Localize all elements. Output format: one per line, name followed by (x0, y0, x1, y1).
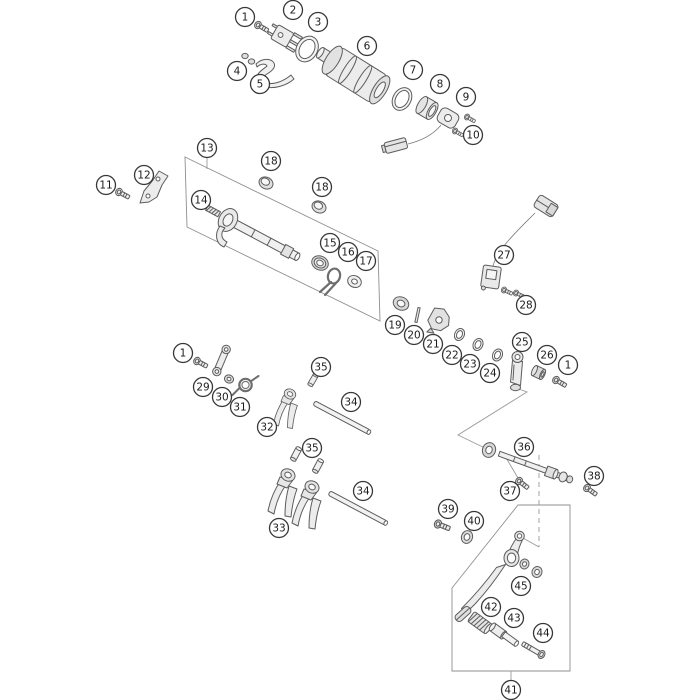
callout-14[interactable]: 14 (192, 191, 211, 210)
callout-36-label: 36 (517, 442, 531, 454)
callout-37-label: 37 (503, 486, 516, 498)
callout-24-label: 24 (483, 368, 497, 380)
callout-40-label: 40 (467, 516, 480, 528)
callout-29-label: 29 (196, 382, 209, 394)
part-bearing-36-end (480, 441, 497, 460)
callout-25-label: 25 (515, 337, 528, 349)
callout-38[interactable]: 38 (585, 467, 604, 486)
callout-14-label: 14 (194, 195, 208, 207)
callout-16-label: 16 (341, 247, 355, 259)
callout-39[interactable]: 39 (439, 500, 458, 519)
callout-27-label: 27 (497, 250, 510, 262)
callout-45-label: 45 (514, 581, 527, 593)
part-washer-45a (519, 558, 531, 570)
callout-27[interactable]: 27 (495, 246, 514, 265)
callout-26-label: 26 (540, 350, 554, 362)
callout-10[interactable]: 10 (464, 126, 483, 145)
callout-30-label: 30 (215, 392, 228, 404)
callout-39-label: 39 (441, 504, 454, 516)
part-screw-10a (463, 113, 476, 124)
callout-43-label: 43 (507, 613, 520, 625)
box-shift-shaft-assembly (185, 157, 380, 321)
callout-30[interactable]: 30 (213, 388, 232, 407)
part-oring-3 (291, 32, 323, 66)
callout-5-label: 5 (257, 79, 264, 91)
part-bearing-19 (391, 294, 411, 313)
diagram-canvas: 1234567891011121314181815161719202122232… (0, 0, 700, 700)
part-screw-28a (500, 286, 513, 296)
part-shift-fork-32 (274, 387, 298, 428)
callout-38-label: 38 (587, 471, 600, 483)
callout-1-top-label: 1 (242, 12, 249, 24)
callout-6-label: 6 (364, 41, 371, 53)
part-shift-fork-33a (268, 467, 297, 517)
callout-4[interactable]: 4 (228, 62, 247, 81)
part-bearing-15 (309, 253, 330, 273)
callout-22-label: 22 (445, 350, 458, 362)
callout-12-label: 12 (137, 170, 150, 182)
part-bushing-8 (414, 95, 441, 121)
callout-31-label: 31 (233, 402, 246, 414)
callout-8-label: 8 (437, 79, 444, 91)
callout-11[interactable]: 11 (97, 176, 116, 195)
callout-1-lower[interactable]: 1 (174, 344, 193, 363)
callout-20[interactable]: 20 (405, 326, 424, 345)
callout-35-lower[interactable]: 35 (303, 439, 322, 458)
part-bushing-18-right (310, 199, 328, 216)
part-shift-shaft-13 (214, 205, 301, 262)
callout-13-label: 13 (200, 143, 213, 155)
part-roller-35-lower-b (312, 458, 324, 474)
part-link-29 (211, 344, 231, 377)
callout-3-label: 3 (315, 17, 322, 29)
callout-45[interactable]: 45 (512, 577, 531, 596)
leader-shaft-to-pedal-tail (523, 538, 539, 547)
callout-23[interactable]: 23 (461, 355, 480, 374)
part-index-segment-21 (423, 305, 454, 339)
callout-37[interactable]: 37 (501, 482, 520, 501)
callout-10-label: 10 (466, 130, 479, 142)
part-washer-24 (491, 347, 505, 362)
callout-16[interactable]: 16 (339, 243, 358, 262)
callout-40[interactable]: 40 (465, 512, 484, 531)
callout-35-lower-label: 35 (305, 443, 318, 455)
callout-34-upper[interactable]: 34 (342, 393, 361, 412)
callout-12[interactable]: 12 (135, 166, 154, 185)
part-bolt-1-top (253, 20, 270, 34)
callout-13[interactable]: 13 (198, 139, 217, 158)
callout-24[interactable]: 24 (481, 364, 500, 383)
callout-9-label: 9 (463, 92, 470, 104)
callout-33-label: 33 (272, 523, 285, 535)
part-washer-22 (453, 327, 467, 342)
callouts-layer: 1234567891011121314181815161719202122232… (97, 1, 604, 700)
part-pin-20 (415, 307, 420, 322)
part-connector-top (381, 137, 408, 154)
callout-28[interactable]: 28 (517, 296, 536, 315)
callout-1-mid-label: 1 (565, 360, 572, 372)
part-bushing-18-left (257, 175, 275, 192)
callout-18-left-label: 18 (264, 156, 277, 168)
callout-15[interactable]: 15 (321, 234, 340, 253)
callout-20-label: 20 (407, 330, 420, 342)
callout-41-label: 41 (504, 685, 517, 697)
callout-29[interactable]: 29 (194, 378, 213, 397)
callout-6[interactable]: 6 (358, 37, 377, 56)
callout-21[interactable]: 21 (424, 335, 443, 354)
part-shift-lever-25 (511, 352, 524, 391)
callout-34-lower-label: 34 (356, 486, 370, 498)
callout-32[interactable]: 32 (258, 418, 277, 437)
callout-18-right[interactable]: 18 (313, 178, 332, 197)
callout-17[interactable]: 17 (357, 252, 376, 271)
callout-34-upper-label: 34 (344, 397, 358, 409)
callout-5[interactable]: 5 (251, 75, 270, 94)
part-spring-31 (233, 376, 259, 395)
callout-9[interactable]: 9 (457, 88, 476, 107)
callout-8[interactable]: 8 (431, 75, 450, 94)
part-washer-40 (460, 529, 475, 545)
part-connector-27 (533, 194, 559, 218)
callout-1-mid[interactable]: 1 (559, 356, 578, 375)
callout-33[interactable]: 33 (270, 519, 289, 538)
part-washer-45b (530, 565, 543, 579)
callout-18-right-label: 18 (315, 182, 328, 194)
part-screw-10b (451, 127, 464, 138)
callout-35-upper[interactable]: 35 (312, 358, 331, 377)
callout-32-label: 32 (260, 422, 273, 434)
parts-diagram: 1234567891011121314181815161719202122232… (0, 0, 700, 700)
callout-22[interactable]: 22 (443, 346, 462, 365)
callout-11-label: 11 (99, 180, 112, 192)
part-nut-26 (530, 365, 547, 381)
callout-19-label: 19 (388, 320, 401, 332)
part-shift-fork-33b (292, 479, 321, 529)
part-sensor-cable-top (408, 125, 441, 144)
part-gear-position-sensor-9 (435, 106, 460, 130)
part-roller-35-lower-a (290, 446, 302, 462)
callout-4-label: 4 (234, 66, 241, 78)
callout-44[interactable]: 44 (534, 624, 553, 643)
callout-1-top[interactable]: 1 (236, 8, 255, 27)
callout-42[interactable]: 42 (482, 598, 501, 617)
callout-34-lower[interactable]: 34 (354, 482, 373, 501)
callout-7[interactable]: 7 (404, 61, 423, 80)
callout-35-upper-label: 35 (314, 362, 327, 374)
part-bolt-11 (114, 187, 131, 201)
callout-19[interactable]: 19 (386, 316, 405, 335)
callout-2-label: 2 (290, 5, 297, 17)
part-bolt-1-lower (192, 356, 209, 370)
callout-44-label: 44 (536, 628, 550, 640)
callout-25[interactable]: 25 (513, 333, 532, 352)
callout-43[interactable]: 43 (505, 609, 524, 628)
part-bolt-1-mid (551, 375, 568, 389)
callout-17-label: 17 (359, 256, 372, 268)
callout-2[interactable]: 2 (284, 1, 303, 20)
part-bolt-39 (433, 519, 451, 533)
callout-1-lower-label: 1 (180, 348, 187, 360)
callout-23-label: 23 (463, 359, 476, 371)
part-washer-17 (346, 273, 364, 289)
part-nuts-4 (242, 53, 255, 64)
callout-28-label: 28 (519, 300, 532, 312)
callout-41[interactable]: 41 (502, 681, 521, 700)
callout-26[interactable]: 26 (538, 346, 557, 365)
callout-7-label: 7 (410, 65, 417, 77)
part-oring-7 (388, 84, 416, 114)
part-washer-23 (471, 337, 485, 352)
callout-42-label: 42 (484, 602, 497, 614)
part-linkage-shaft-36 (497, 449, 574, 485)
callout-36[interactable]: 36 (515, 438, 534, 457)
part-locking-clip-16 (320, 267, 342, 295)
callout-21-label: 21 (426, 339, 439, 351)
callout-18-left[interactable]: 18 (262, 152, 281, 171)
part-washer-30 (223, 374, 234, 385)
part-sensor-27 (480, 265, 501, 292)
callout-3[interactable]: 3 (309, 13, 328, 32)
part-shift-drum-6 (310, 38, 394, 107)
callout-31[interactable]: 31 (231, 398, 250, 417)
callout-15-label: 15 (323, 238, 336, 250)
